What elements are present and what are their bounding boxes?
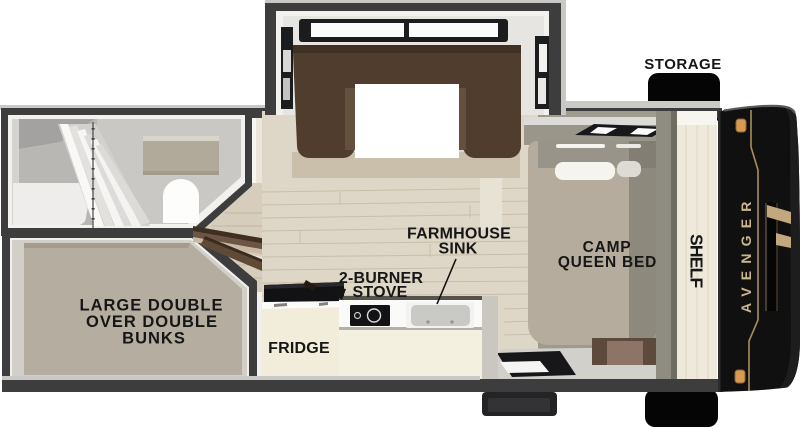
svg-text:BUNKS: BUNKS — [122, 330, 186, 348]
svg-text:STOVE: STOVE — [353, 284, 408, 301]
svg-text:SHELF: SHELF — [687, 234, 707, 288]
svg-text:QUEEN BED: QUEEN BED — [558, 254, 657, 271]
svg-text:AVENGER: AVENGER — [738, 194, 754, 313]
svg-text:STORAGE: STORAGE — [644, 56, 721, 73]
svg-text:FRIDGE: FRIDGE — [268, 340, 330, 357]
svg-text:OVER DOUBLE: OVER DOUBLE — [86, 313, 218, 331]
svg-text:SINK: SINK — [438, 241, 477, 258]
svg-text:LARGE DOUBLE: LARGE DOUBLE — [80, 297, 224, 315]
